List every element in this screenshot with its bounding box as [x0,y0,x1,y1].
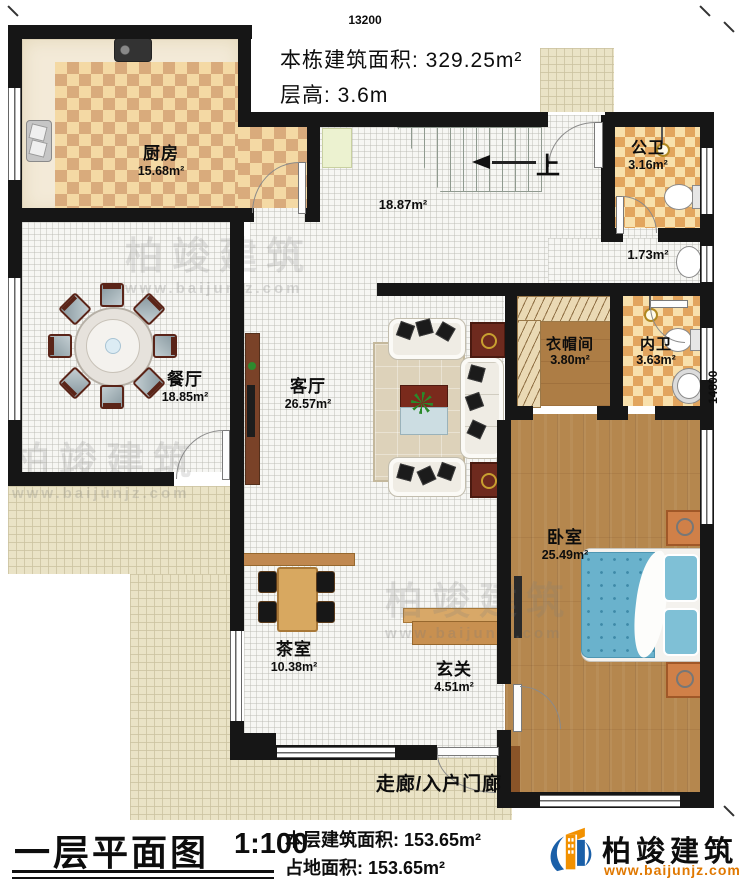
wall [307,127,320,210]
tea-shelf [243,553,355,566]
wall [8,208,254,222]
wall [8,472,174,486]
bed-pillow [663,554,699,602]
dimension-tick [699,5,710,16]
room-name: 走廊/入户门廊 [339,774,539,796]
room-area: 3.16m² [588,158,708,172]
dimension-width: 13200 [330,13,400,27]
dimension-tick [723,805,734,816]
window [277,747,395,758]
plant-icon [248,362,256,370]
kitchen-floor [55,62,238,208]
room-name: 玄关 [394,660,514,680]
toilet-icon [664,184,694,210]
kitchen-door-leaf [298,162,306,214]
tea-chair [316,571,335,593]
room-name: 内卫 [596,336,716,353]
room-label-dining: 餐厅 18.85m² [125,370,245,404]
console-table [412,621,500,645]
stair-arrow-icon [472,155,490,169]
room-area: 18.85m² [125,390,245,404]
brand-logo-icon [545,826,597,878]
building-area-annotation: 本栋建筑面积: 329.25m² [280,44,660,74]
window [8,88,21,180]
dining-door-leaf [222,430,230,480]
room-area: 26.57m² [248,397,368,411]
room-area: 25.49m² [505,548,625,562]
wardrobe-hatch-top [517,296,612,322]
room-area: 10.38m² [234,660,354,674]
window [701,430,713,524]
window [8,278,21,420]
vestibule-area-label: 1.73m² [608,247,688,262]
room-name: 餐厅 [125,370,245,390]
wall [230,222,244,631]
patio-floor-lower [130,574,230,820]
stove-icon [114,38,152,62]
patio-floor [8,486,230,574]
wall [505,406,533,420]
window [701,246,713,282]
room-label-private-bath: 内卫 3.63m² [596,336,716,368]
room-label-entry: 玄关 4.51m² [394,660,514,694]
floor-height-annotation: 层高: 3.6m [280,79,660,109]
room-label-bedroom: 卧室 25.49m² [505,528,625,562]
title-underline [12,870,274,879]
plan-title: 一层平面图 [14,824,209,876]
floor-plan-canvas: 厨房 15.68m² 餐厅 18.85m² 客厅 26.57m² 18.87m²… [0,0,750,884]
hall-area-label: 18.87m² [363,197,443,212]
brand-website: www.baijunjz.com [604,862,741,878]
tea-chair [258,601,277,623]
tea-table [277,567,318,632]
room-area: 4.51m² [394,680,514,694]
dimension-height: 14800 [706,352,722,422]
wall [497,730,511,808]
wall [238,112,320,127]
dining-chair [100,385,124,409]
room-label-tea-room: 茶室 10.38m² [234,640,354,674]
window [540,795,680,807]
washbasin-icon [677,373,701,399]
dimension-tick [723,21,734,32]
wall [305,208,320,222]
room-area: 15.68m² [101,164,221,178]
room-label-public-bath: 公卫 3.16m² [588,140,708,173]
bedroom-tv-icon [514,576,522,638]
side-table [470,322,506,358]
dining-chair [100,283,124,307]
lazy-susan [105,338,121,354]
room-name: 茶室 [234,640,354,660]
room-label-living: 客厅 26.57m² [248,377,368,411]
stairs-up-label: 上 [536,146,560,181]
footprint-area-text: 占地面积: 153.65m² [285,854,445,880]
plant-icon [411,392,433,414]
hall-cabinet [322,128,352,168]
room-name: 厨房 [101,144,221,164]
title-block: 一层平面图 1:100 本层建筑面积: 153.65m² 占地面积: 153.6… [0,820,750,884]
room-area: 3.63m² [596,353,716,367]
wall [320,112,548,127]
bed-pillow [663,608,699,656]
room-label-kitchen: 厨房 15.68m² [101,144,221,178]
wall [377,283,714,296]
room-name: 客厅 [248,377,368,397]
room-label-corridor: 走廊/入户门廊 [339,774,539,796]
wall [597,406,628,420]
wall [605,112,714,127]
dining-chair [48,334,72,358]
tea-chair [316,601,335,623]
wall [8,25,252,39]
stair-direction-line [492,161,536,164]
floor-area-text: 本层建筑面积: 153.65m² [285,826,481,852]
wall [658,228,714,242]
wall [238,25,251,115]
tea-chair [258,571,277,593]
dimension-tick [7,5,18,16]
dining-chair [153,334,177,358]
room-name: 卧室 [505,528,625,548]
room-name: 公卫 [588,140,708,158]
